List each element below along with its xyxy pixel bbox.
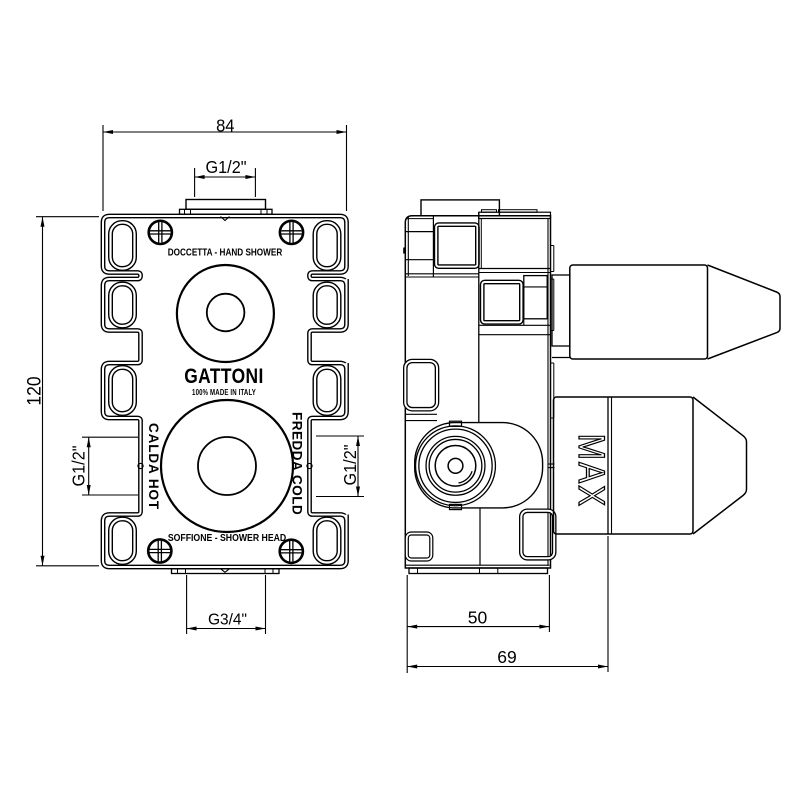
svg-text:GATTONI: GATTONI [184,364,264,388]
svg-text:G3/4": G3/4" [208,612,247,629]
svg-text:SOFFIONE - SHOWER HEAD: SOFFIONE - SHOWER HEAD [168,532,286,544]
svg-text:G1/2": G1/2" [340,444,360,485]
svg-text:G1/2": G1/2" [205,158,246,178]
svg-text:DOCCETTA - HAND SHOWER: DOCCETTA - HAND SHOWER [168,245,283,257]
svg-text:G1/2": G1/2" [69,445,89,486]
svg-text:50: 50 [468,608,488,628]
svg-text:84: 84 [216,115,235,136]
svg-text:MAX: MAX [570,434,611,509]
svg-text:100% MADE IN ITALY: 100% MADE IN ITALY [192,389,256,397]
svg-text:CALDA HOT: CALDA HOT [146,423,161,510]
svg-text:69: 69 [497,647,516,667]
svg-text:FREDDA COLD: FREDDA COLD [290,412,305,515]
svg-text:120: 120 [23,376,45,405]
